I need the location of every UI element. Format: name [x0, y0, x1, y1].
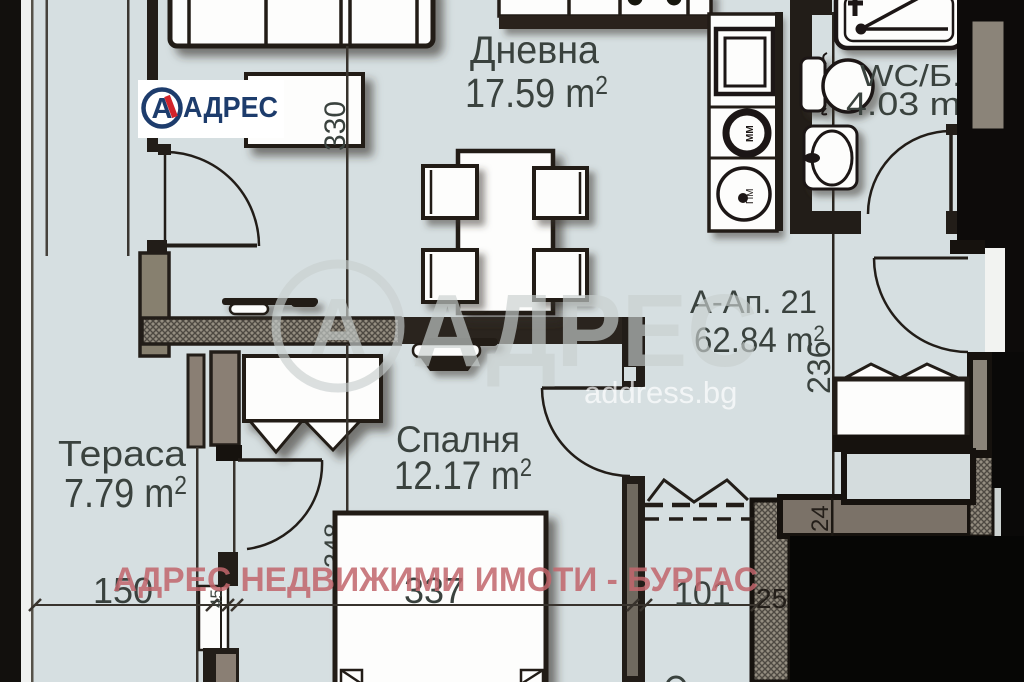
svg-text:АДРЕС НЕДВИЖИМИ ИМОТИ - БУРГАС: АДРЕС НЕДВИЖИМИ ИМОТИ - БУРГАС [113, 561, 758, 599]
svg-text:4.03 m2: 4.03 m2 [846, 86, 974, 122]
svg-text:address.bg: address.bg [584, 375, 737, 410]
svg-text:7.79 m2: 7.79 m2 [64, 470, 187, 516]
svg-text:Тераса: Тераса [58, 433, 187, 474]
svg-text:25: 25 [756, 583, 787, 614]
svg-text:330: 330 [319, 101, 352, 151]
svg-text:12.17 m2: 12.17 m2 [394, 454, 532, 498]
svg-text:17.59 m2: 17.59 m2 [465, 70, 608, 116]
svg-text:24: 24 [807, 505, 834, 532]
svg-text:А: А [309, 282, 367, 371]
svg-text:ПМ: ПМ [745, 188, 756, 204]
svg-text:Дневна: Дневна [470, 29, 599, 72]
svg-text:ММ: ММ [745, 125, 756, 142]
svg-text:АДРЕС: АДРЕС [183, 92, 278, 124]
svg-text:АДРЕС: АДРЕС [412, 273, 758, 388]
